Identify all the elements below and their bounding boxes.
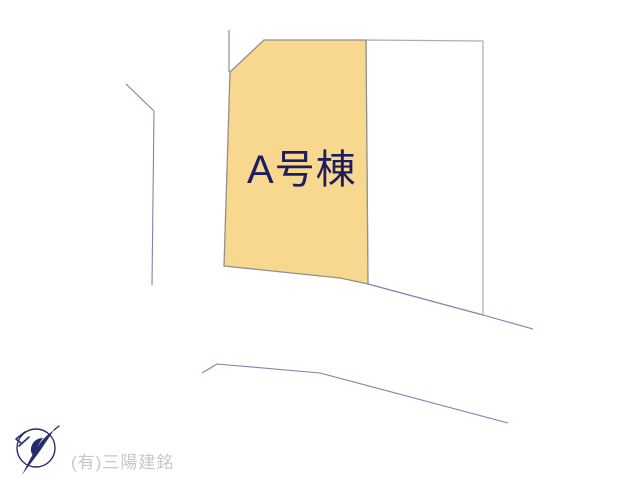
adjacent-lot-polygon — [366, 40, 483, 315]
west-road-line — [126, 84, 154, 285]
footer-brand: (有)三陽建銘 — [13, 421, 174, 479]
site-plan-canvas: A号棟 (有)三陽建銘 — [0, 0, 640, 480]
company-name: (有)三陽建銘 — [71, 448, 174, 473]
plan-shapes — [126, 30, 533, 423]
bird-body — [22, 430, 54, 475]
bird-beak — [54, 426, 59, 430]
lot-a-label: A号棟 — [247, 148, 357, 192]
site-plan-svg: A号棟 — [0, 0, 640, 480]
south-road-line — [202, 364, 508, 423]
compass-bird-logo-icon — [13, 421, 63, 479]
